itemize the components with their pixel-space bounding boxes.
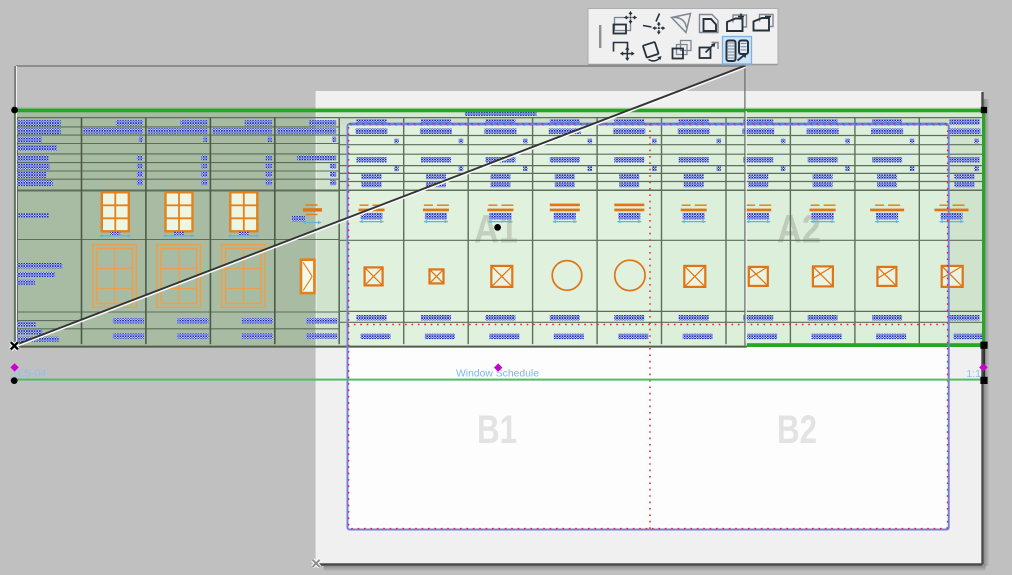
- svg-text:B2: B2: [777, 408, 817, 452]
- svg-text:1:1: 1:1: [966, 368, 981, 380]
- svg-text:B1: B1: [477, 408, 517, 452]
- svg-text:ES-04: ES-04: [17, 368, 46, 380]
